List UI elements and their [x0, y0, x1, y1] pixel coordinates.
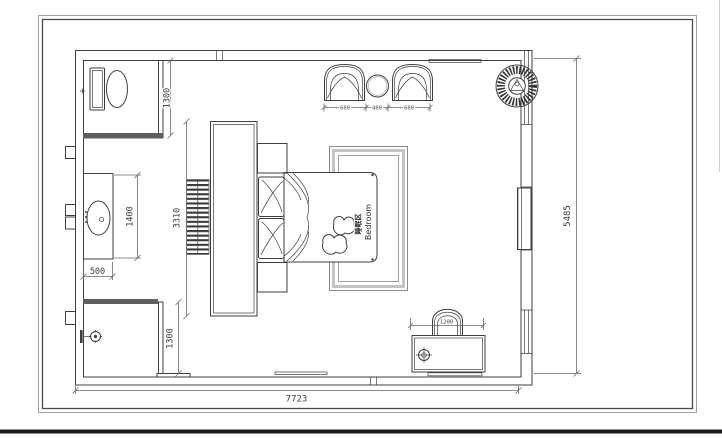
- armchair-right: [392, 65, 433, 101]
- dim-wc-depth: 1300: [163, 58, 174, 139]
- room-label-zh: 睡眠区: [354, 214, 363, 235]
- dim-text: 7723: [286, 395, 308, 405]
- nightstand-bottom: [258, 263, 288, 293]
- vanity-counter: [84, 174, 114, 260]
- dim-text: 600: [404, 106, 414, 112]
- dim-armchairs: 600 400 600: [322, 104, 433, 112]
- dim-text: 3310: [173, 208, 183, 228]
- pillow: [259, 219, 285, 259]
- dim-text: 5485: [563, 205, 573, 227]
- pillow: [259, 177, 285, 217]
- toilet-fixture: [80, 68, 128, 110]
- drawing-border-frame: [39, 0, 720, 413]
- room-label-en: Bedroom: [364, 204, 373, 240]
- dim-text: 1300: [166, 328, 176, 348]
- desk: [412, 336, 485, 376]
- cad-floor-plan-view: 睡眠区 Bedroom: [0, 0, 722, 438]
- dim-headboard-wall: 3310: [173, 119, 190, 320]
- dim-desk-width: 1200: [408, 318, 486, 330]
- dim-room-height: 5485: [534, 56, 581, 377]
- wardrobe-cabinet: [211, 122, 258, 317]
- wc-room: [80, 61, 163, 139]
- dim-vanity-width: 500: [81, 262, 116, 280]
- bed: 睡眠区 Bedroom: [284, 173, 377, 263]
- dim-text: 1300: [163, 88, 173, 108]
- dim-text: 500: [90, 267, 105, 277]
- dim-text: 600: [340, 106, 350, 112]
- radiator-strip: [187, 180, 210, 255]
- dim-text: 400: [372, 106, 382, 112]
- dim-text: 1200: [440, 320, 453, 326]
- dim-room-width: 7723: [73, 386, 522, 405]
- dim-shower-depth: 1300: [166, 299, 182, 377]
- nightstand-top: [258, 144, 288, 174]
- armchair-left: [324, 65, 365, 101]
- dim-text: 1400: [126, 206, 136, 226]
- floor-plan-drawing: 睡眠区 Bedroom: [0, 0, 722, 438]
- sink-fixture: [85, 201, 110, 235]
- plant-icon: [496, 65, 538, 107]
- dim-vanity-length: 1400: [114, 172, 141, 261]
- side-table: [367, 75, 389, 97]
